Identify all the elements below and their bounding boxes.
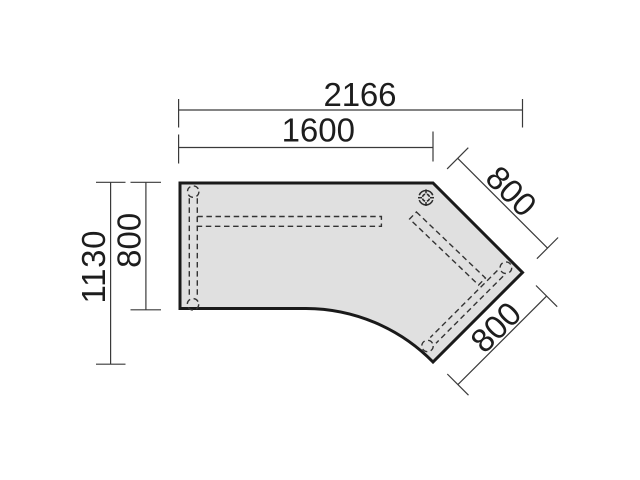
svg-text:1130: 1130 [75, 231, 112, 304]
svg-text:1600: 1600 [282, 112, 355, 149]
svg-text:800: 800 [479, 159, 544, 224]
svg-text:800: 800 [111, 213, 148, 268]
svg-text:2166: 2166 [324, 76, 397, 113]
